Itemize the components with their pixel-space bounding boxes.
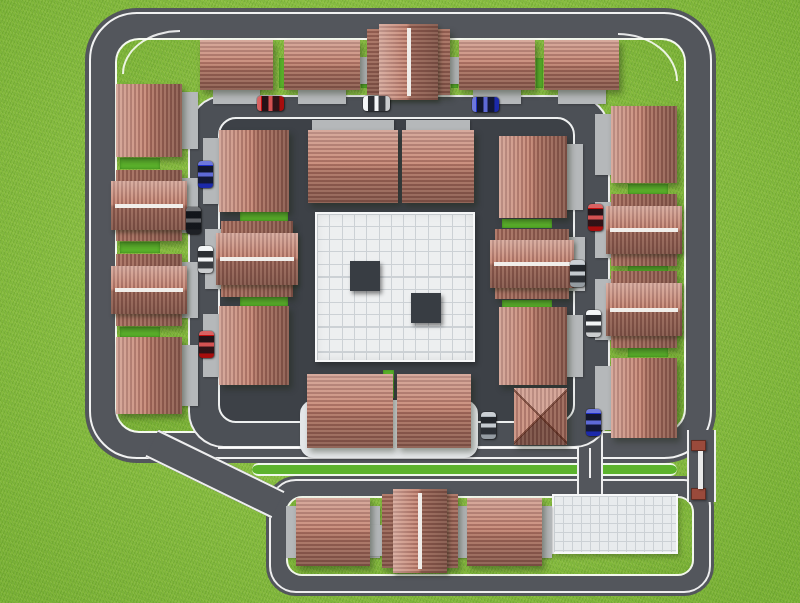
roof-ridge-line (220, 257, 294, 261)
house (611, 271, 677, 348)
house (307, 374, 393, 448)
roof-ridge-line (610, 308, 678, 312)
house (219, 130, 289, 212)
roof-ridge-line (115, 288, 183, 292)
hedge (536, 58, 543, 88)
house-driveway-pad (565, 144, 583, 210)
house-upper-story (379, 24, 439, 100)
house (308, 130, 398, 203)
house (611, 106, 677, 183)
house (367, 29, 450, 95)
car-blue (472, 97, 499, 112)
road-lane-line (218, 447, 302, 449)
house (116, 170, 182, 241)
house-driveway-pad (180, 92, 198, 149)
house (397, 374, 471, 448)
central-plaza (315, 212, 475, 362)
house-upper-story (216, 233, 298, 285)
house-driveway-pad (298, 88, 347, 104)
house (284, 40, 360, 90)
roof-ridge-line (407, 28, 411, 96)
roof-ridge-line (418, 493, 422, 569)
plaza-block (350, 261, 380, 291)
house (611, 358, 677, 438)
house (499, 136, 567, 218)
hedge (240, 212, 288, 221)
car-dark (186, 207, 201, 234)
car-silver (570, 260, 585, 287)
house (116, 84, 182, 157)
car-white (586, 310, 601, 337)
hedge (502, 219, 552, 228)
car-silver (481, 412, 496, 439)
car-white (363, 96, 390, 111)
car-red (199, 331, 214, 358)
house-upper-story (111, 266, 187, 315)
house-upper-story (606, 283, 682, 335)
house (402, 130, 474, 203)
house (611, 194, 677, 266)
gate-barrier (698, 451, 703, 489)
plaza-block (411, 293, 441, 323)
car-blue (586, 409, 601, 436)
house (200, 40, 273, 90)
house (221, 221, 293, 297)
house-upper-story (393, 489, 448, 573)
house (296, 498, 370, 566)
car-blue (198, 161, 213, 188)
roof-ridge-line (115, 204, 183, 208)
house-upper-story (606, 206, 682, 255)
house (116, 337, 182, 414)
road-lane-line (478, 447, 577, 449)
hedge (120, 158, 160, 169)
house (544, 40, 619, 90)
house-driveway-pad (213, 88, 260, 104)
house (499, 307, 567, 385)
house (459, 40, 535, 90)
roof-ridge-line (494, 262, 570, 266)
house-driveway-pad (180, 345, 198, 406)
house (514, 388, 567, 445)
roof-ridge-line (610, 228, 678, 232)
house-upper-story (111, 181, 187, 229)
hedge (120, 327, 160, 337)
gate-post (691, 440, 706, 451)
house (219, 306, 289, 385)
house-driveway-pad (558, 88, 606, 104)
house (382, 494, 458, 568)
house-driveway-pad (565, 315, 583, 377)
car-white (198, 246, 213, 273)
hedge (240, 297, 288, 306)
house-upper-story (490, 240, 574, 288)
hedge (628, 184, 668, 194)
gate-post (691, 488, 706, 500)
house (467, 498, 542, 566)
house (116, 254, 182, 326)
median-strip (252, 463, 677, 476)
car-red (588, 204, 603, 231)
car-red (257, 96, 284, 111)
hedge (628, 348, 668, 357)
parking-lot (552, 494, 678, 554)
house (495, 229, 569, 299)
hedge (120, 242, 160, 253)
site-plan-render (0, 0, 800, 603)
